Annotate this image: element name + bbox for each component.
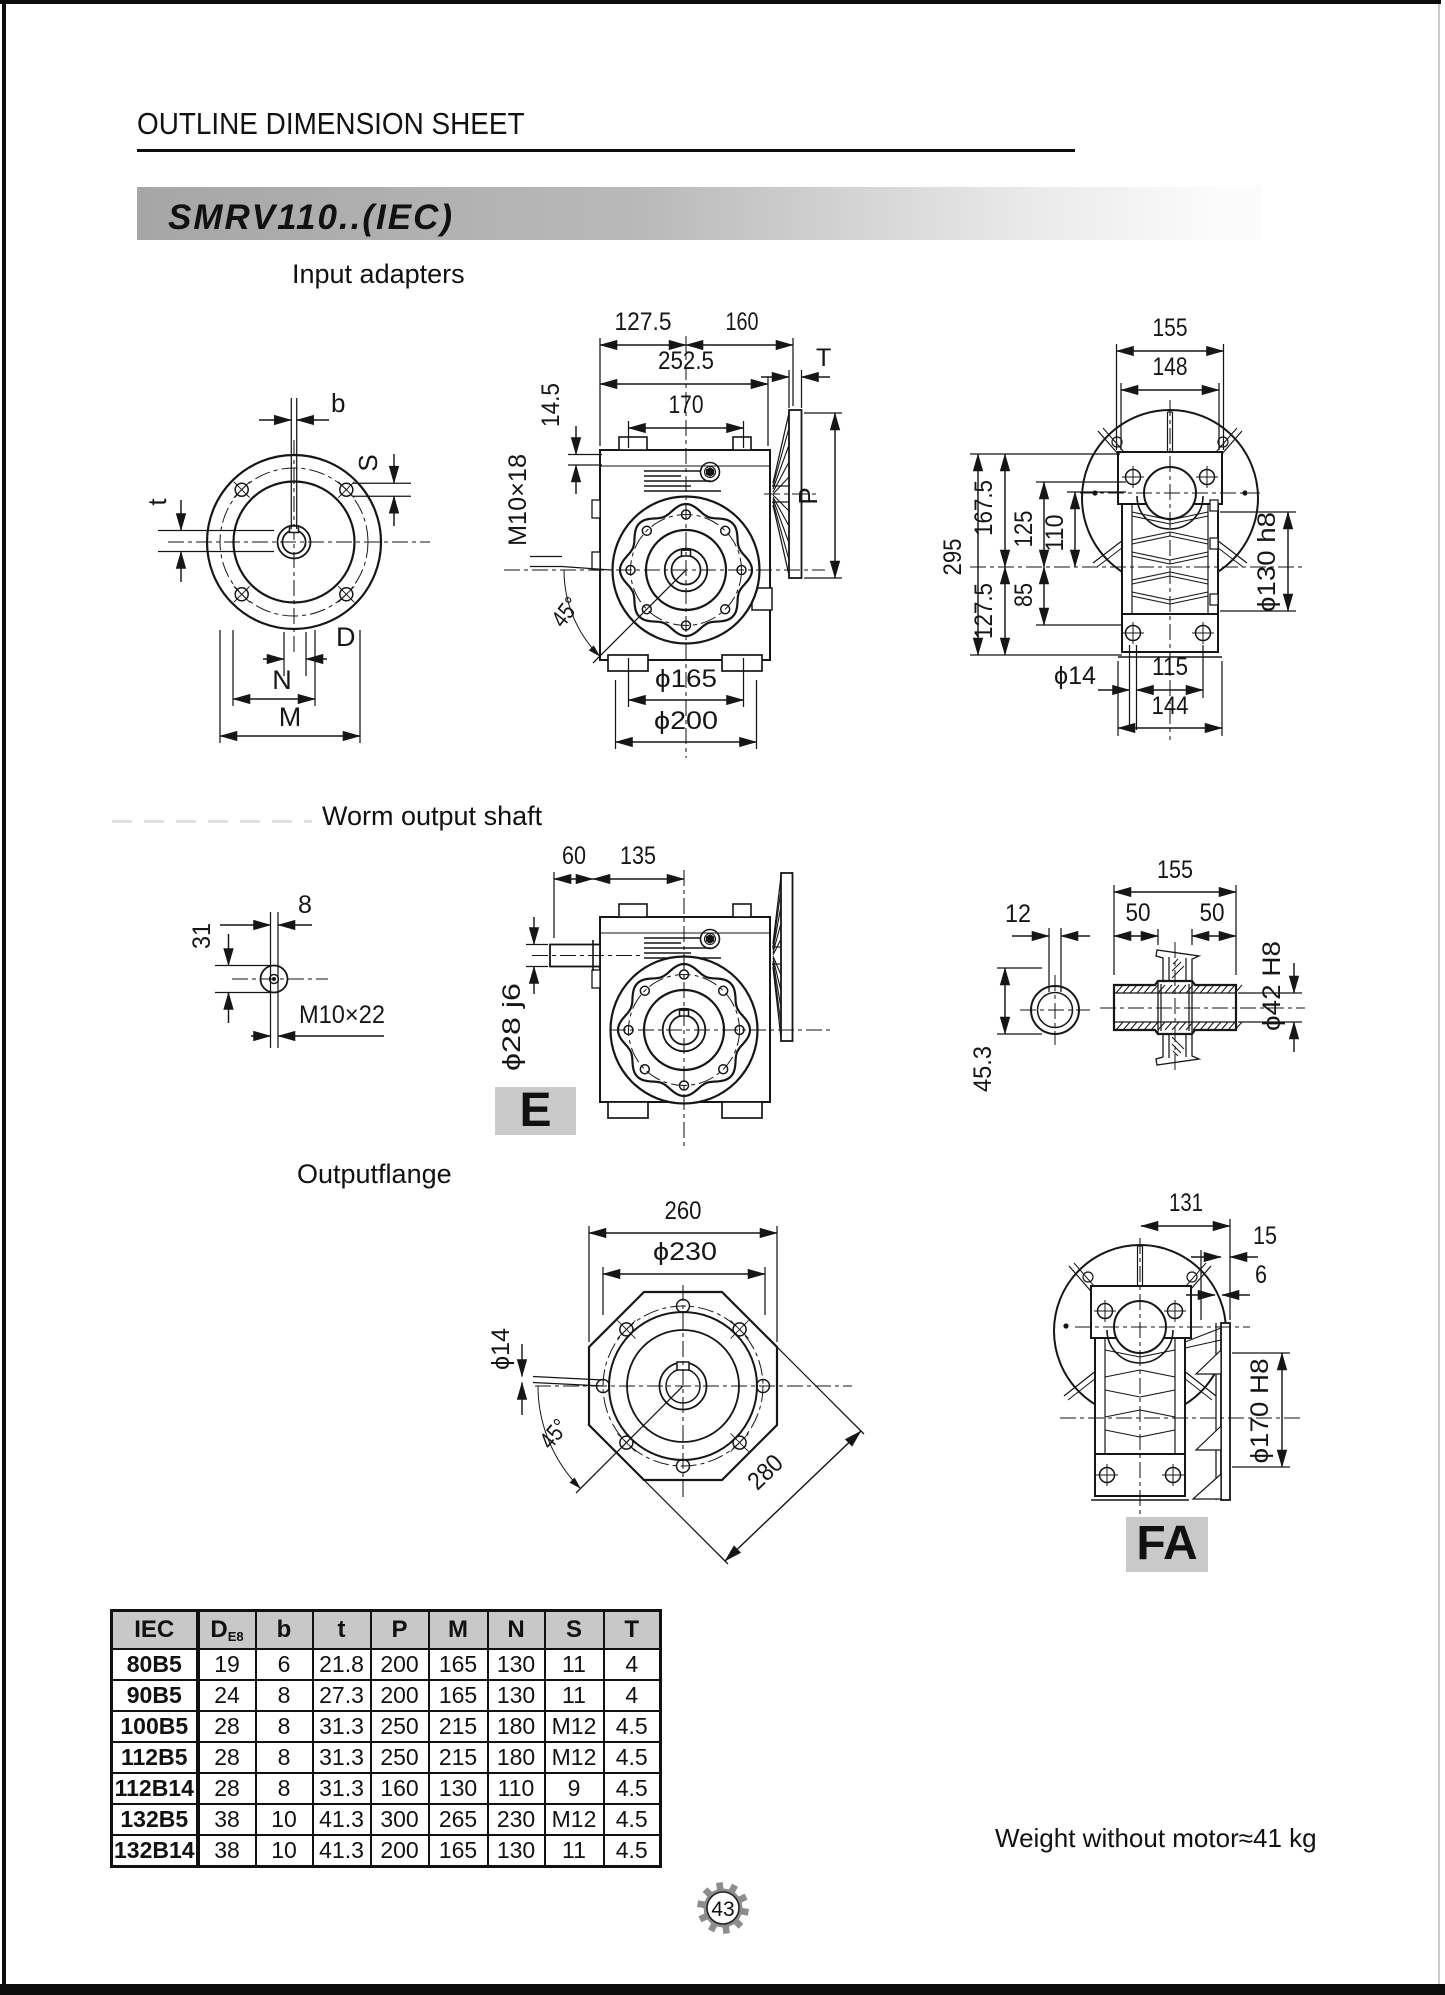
svg-text:45.3: 45.3: [969, 1046, 997, 1092]
svg-text:160: 160: [726, 308, 759, 336]
svg-text:M10×22: M10×22: [299, 1001, 385, 1029]
svg-text:31: 31: [188, 923, 216, 949]
svg-text:127.5: 127.5: [615, 308, 672, 336]
svg-text:135: 135: [620, 842, 656, 870]
svg-text:D: D: [336, 622, 356, 652]
svg-text:6: 6: [1255, 1261, 1267, 1289]
svg-text:ϕ165: ϕ165: [655, 665, 717, 693]
svg-text:131: 131: [1169, 1189, 1203, 1217]
svg-text:110: 110: [1041, 515, 1069, 552]
svg-text:295: 295: [939, 539, 967, 576]
svg-text:ϕ42 H8: ϕ42 H8: [1258, 941, 1286, 1031]
svg-text:170: 170: [669, 391, 704, 419]
svg-text:280: 280: [742, 1449, 789, 1496]
svg-text:ϕ230: ϕ230: [653, 1238, 717, 1266]
svg-text:ϕ200: ϕ200: [654, 707, 718, 735]
svg-text:t: t: [142, 498, 172, 506]
svg-text:ϕ14: ϕ14: [487, 1328, 515, 1370]
svg-text:ϕ130 h8: ϕ130 h8: [1253, 512, 1281, 612]
svg-text:N: N: [272, 665, 292, 695]
svg-text:50: 50: [1200, 899, 1225, 927]
svg-text:155: 155: [1157, 856, 1193, 884]
svg-text:M10×18: M10×18: [504, 454, 532, 546]
svg-text:50: 50: [1126, 899, 1151, 927]
svg-text:P: P: [793, 487, 823, 504]
svg-text:144: 144: [1152, 692, 1189, 720]
svg-text:b: b: [331, 388, 345, 418]
svg-text:167.5: 167.5: [970, 480, 998, 536]
svg-text:260: 260: [665, 1197, 702, 1225]
svg-text:155: 155: [1153, 314, 1188, 342]
svg-text:ϕ14: ϕ14: [1054, 662, 1096, 690]
svg-text:45°: 45°: [546, 592, 586, 632]
svg-text:127.5: 127.5: [970, 583, 998, 639]
svg-text:14.5: 14.5: [537, 383, 565, 427]
svg-text:15: 15: [1253, 1222, 1277, 1250]
svg-text:43: 43: [711, 1898, 734, 1921]
svg-text:S: S: [353, 454, 383, 471]
svg-text:ϕ28 j6: ϕ28 j6: [498, 983, 526, 1071]
svg-text:85: 85: [1010, 583, 1038, 607]
svg-text:T: T: [816, 344, 831, 372]
svg-text:252.5: 252.5: [658, 347, 714, 375]
svg-text:60: 60: [562, 842, 586, 870]
svg-text:12: 12: [1005, 900, 1031, 928]
svg-text:125: 125: [1010, 511, 1038, 548]
svg-text:45°: 45°: [534, 1414, 574, 1454]
svg-text:115: 115: [1152, 653, 1188, 681]
svg-text:148: 148: [1153, 353, 1188, 381]
svg-text:ϕ170 H8: ϕ170 H8: [1246, 1359, 1274, 1464]
svg-text:M: M: [279, 702, 302, 732]
svg-text:8: 8: [298, 891, 312, 919]
